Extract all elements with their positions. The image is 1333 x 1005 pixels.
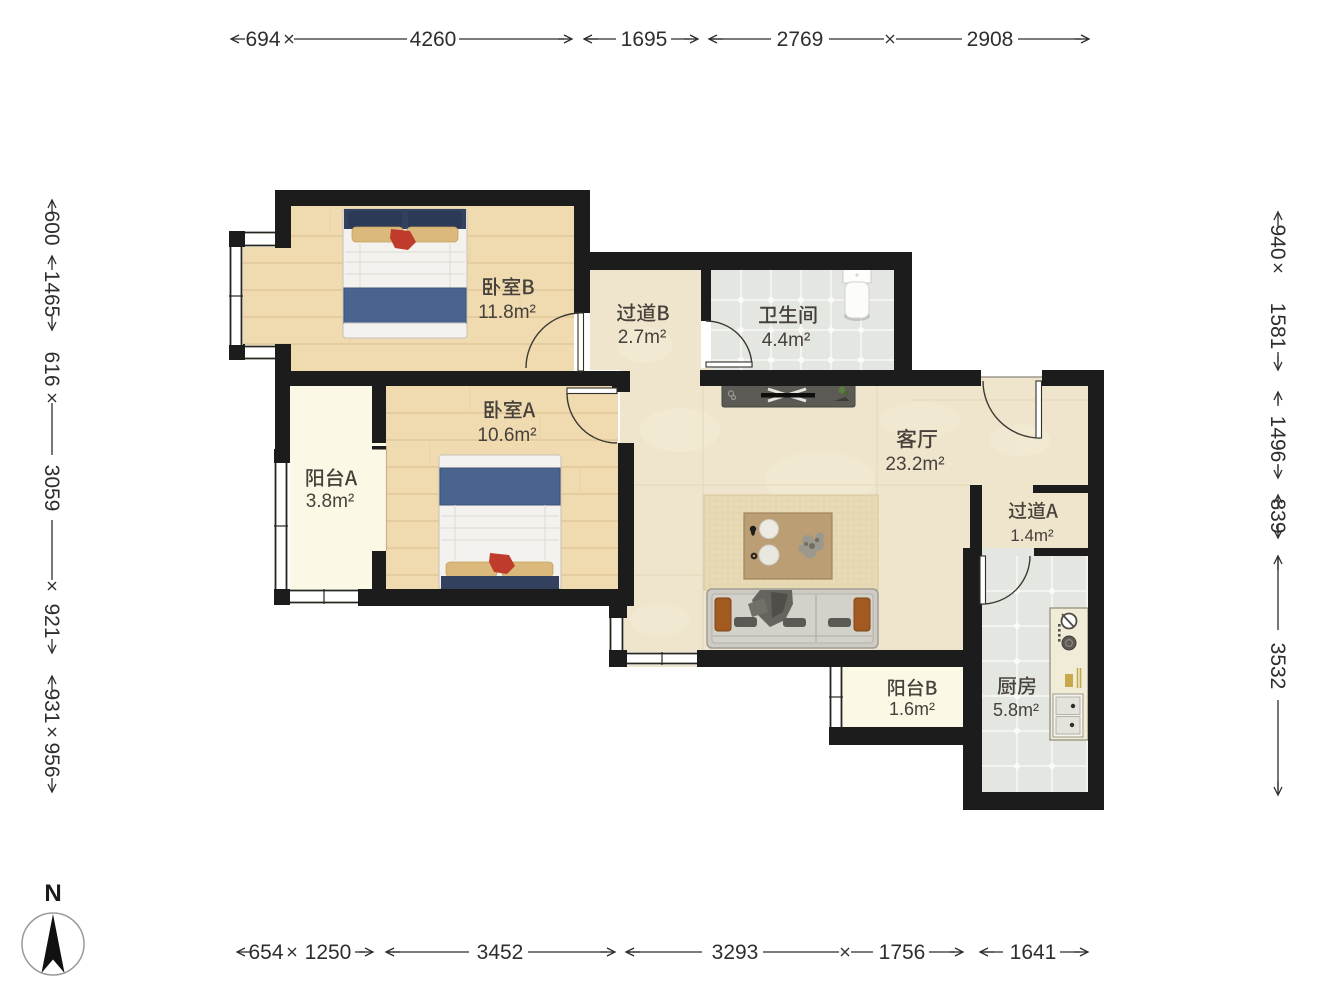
svg-text:600: 600 xyxy=(40,210,63,245)
svg-text:1496: 1496 xyxy=(1266,416,1289,463)
svg-text:3.8m²: 3.8m² xyxy=(306,491,355,512)
svg-text:2908: 2908 xyxy=(967,28,1014,51)
svg-text:921: 921 xyxy=(40,603,63,638)
svg-text:10.6m²: 10.6m² xyxy=(477,425,536,446)
svg-text:931: 931 xyxy=(40,688,63,723)
svg-text:1756: 1756 xyxy=(879,941,926,964)
svg-text:654: 654 xyxy=(248,941,283,964)
svg-text:940: 940 xyxy=(1266,224,1289,259)
svg-text:694: 694 xyxy=(245,28,280,51)
svg-text:5.8m²: 5.8m² xyxy=(993,700,1039,720)
svg-text:1641: 1641 xyxy=(1010,941,1057,964)
svg-text:1.6m²: 1.6m² xyxy=(889,699,935,719)
svg-text:616: 616 xyxy=(40,351,63,386)
svg-text:956: 956 xyxy=(40,742,63,777)
svg-text:1695: 1695 xyxy=(621,28,668,51)
svg-text:2769: 2769 xyxy=(777,28,824,51)
svg-text:4260: 4260 xyxy=(410,28,457,51)
svg-text:23.2m²: 23.2m² xyxy=(885,454,944,475)
svg-text:1581: 1581 xyxy=(1266,303,1289,350)
svg-text:1465: 1465 xyxy=(40,271,63,318)
svg-text:2.7m²: 2.7m² xyxy=(618,327,667,348)
svg-text:1250: 1250 xyxy=(305,941,352,964)
svg-text:3059: 3059 xyxy=(40,465,63,512)
svg-text:3293: 3293 xyxy=(712,941,759,964)
svg-text:11.8m²: 11.8m² xyxy=(478,302,536,323)
svg-text:3532: 3532 xyxy=(1266,643,1289,690)
svg-text:N: N xyxy=(44,880,61,907)
svg-text:4.4m²: 4.4m² xyxy=(762,330,811,351)
svg-text:1.4m²: 1.4m² xyxy=(1010,526,1054,545)
svg-text:3452: 3452 xyxy=(477,941,524,964)
